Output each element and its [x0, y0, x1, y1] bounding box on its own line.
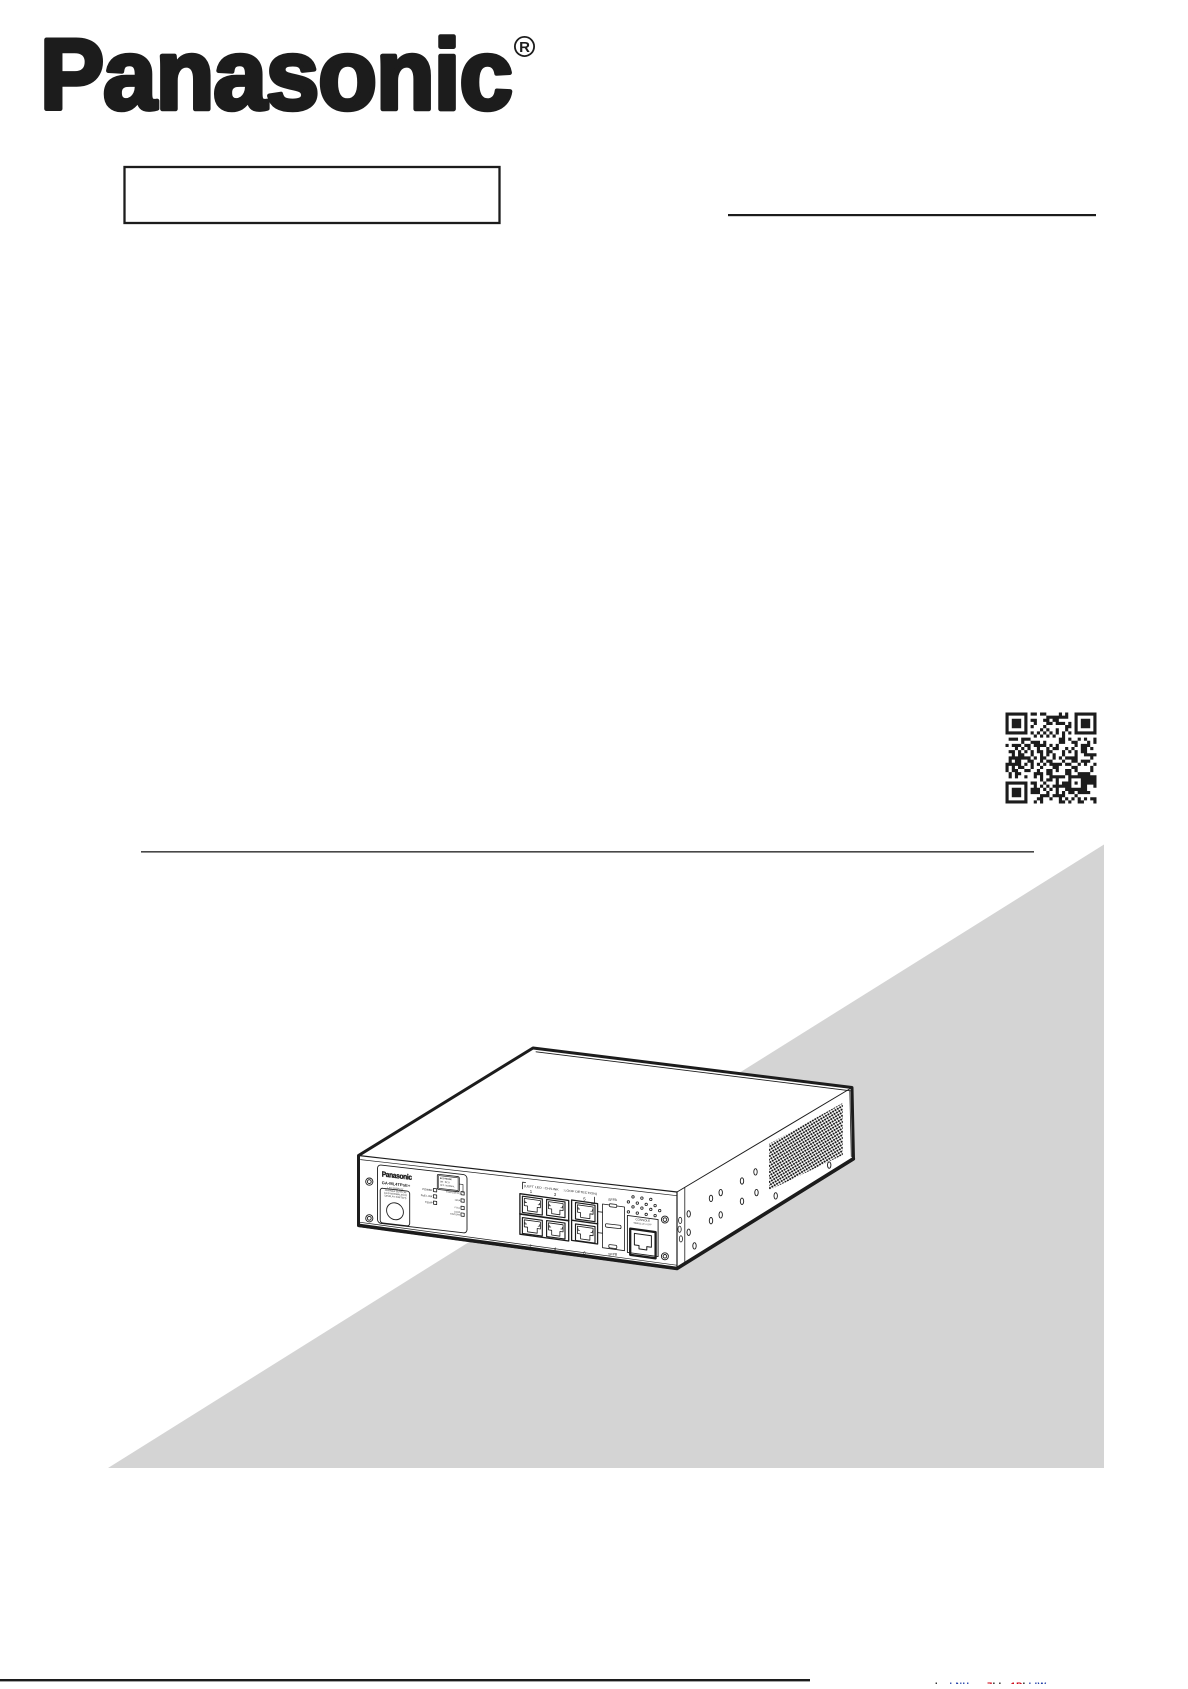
svg-text:R: R	[519, 39, 530, 56]
svg-text:SFPB: SFPB	[608, 1253, 618, 1257]
svg-text:SFPA: SFPA	[608, 1198, 617, 1202]
svg-text:Panasonic: Panasonic	[40, 19, 512, 131]
